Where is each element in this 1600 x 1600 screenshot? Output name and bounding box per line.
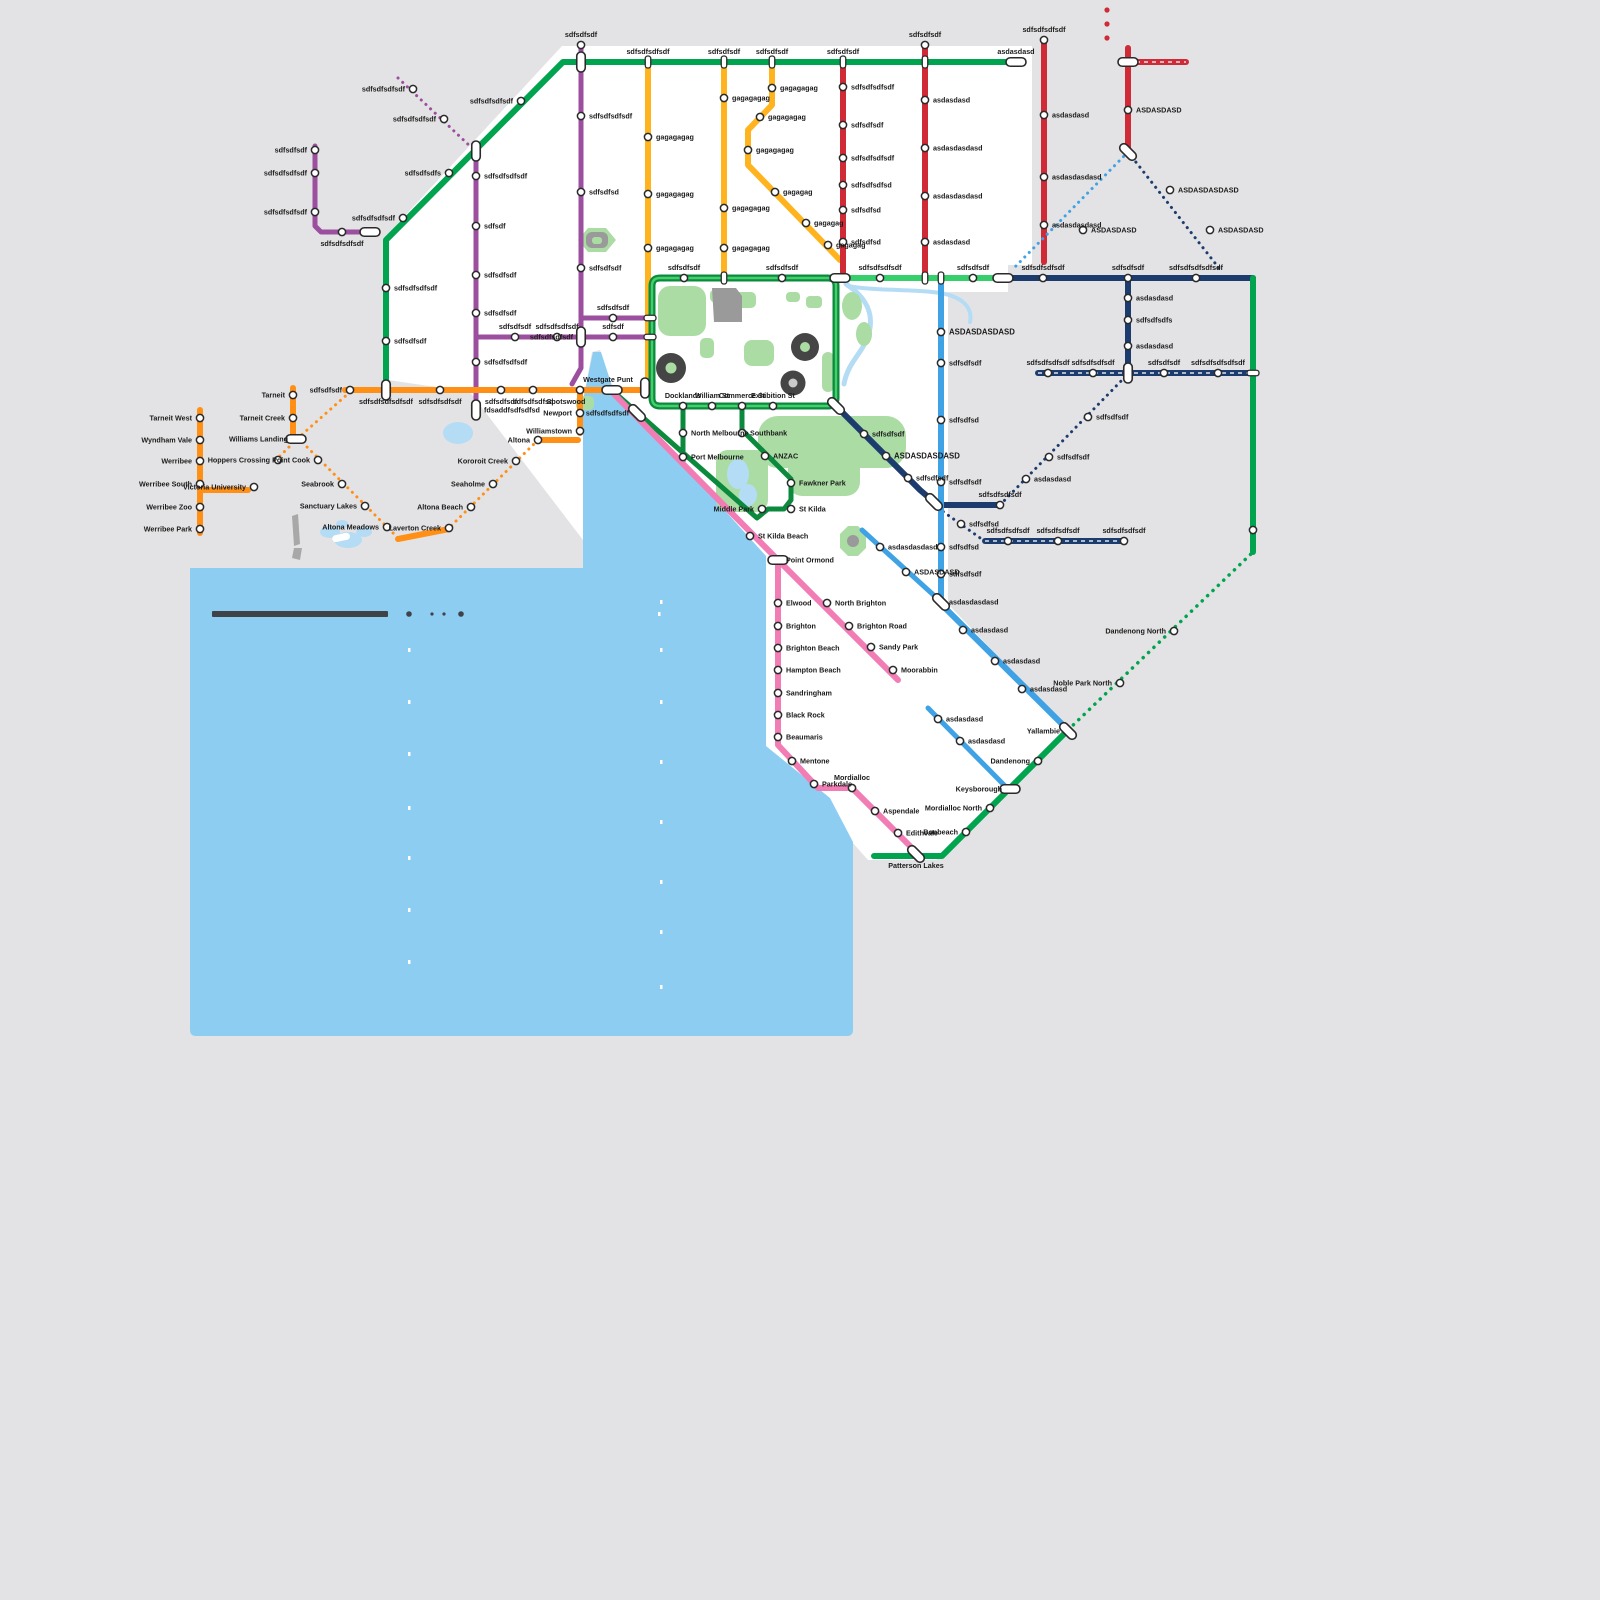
station-black-rock[interactable] bbox=[774, 711, 781, 718]
station-asdasdasd[interactable] bbox=[956, 737, 963, 744]
station-sdfsdfsdf[interactable] bbox=[839, 121, 846, 128]
station-laverton-creek[interactable] bbox=[445, 524, 452, 531]
water-speck bbox=[408, 960, 411, 964]
station-asdasdasdasd[interactable] bbox=[876, 543, 883, 550]
station-sdfsdfsdf[interactable] bbox=[346, 386, 353, 393]
station-sdfsdfsdf[interactable] bbox=[769, 56, 775, 68]
station-sdfsdfsdf[interactable] bbox=[497, 386, 504, 393]
station-anzac[interactable] bbox=[761, 452, 768, 459]
station-middle-park[interactable] bbox=[758, 505, 765, 512]
station-gagagag[interactable] bbox=[771, 188, 778, 195]
station-sdfsdfsdfsdf[interactable] bbox=[311, 208, 318, 215]
station-marker[interactable] bbox=[922, 56, 928, 68]
station-gagagagag[interactable] bbox=[644, 190, 651, 197]
station-marker[interactable] bbox=[922, 272, 928, 284]
scale-bar bbox=[212, 611, 388, 617]
station-gagagagag[interactable] bbox=[720, 204, 727, 211]
station-sdfsdfsd[interactable] bbox=[957, 520, 964, 527]
station-dandenong[interactable] bbox=[1034, 757, 1041, 764]
station-gagagagag[interactable] bbox=[720, 244, 727, 251]
station-sdfsdfsdfsdf[interactable] bbox=[1004, 537, 1011, 544]
station-sdfsdfsdf[interactable] bbox=[472, 271, 479, 278]
station-marker[interactable] bbox=[993, 274, 1013, 283]
station-asdasdasdasd[interactable] bbox=[1040, 173, 1047, 180]
station-sdfsdfsdfsdf[interactable] bbox=[839, 83, 846, 90]
station-aspendale[interactable] bbox=[871, 807, 878, 814]
station-asdasdasd[interactable] bbox=[1018, 685, 1025, 692]
water-speck bbox=[660, 820, 663, 824]
station-marker[interactable] bbox=[1249, 526, 1256, 533]
station-sdfsdfsdf[interactable] bbox=[937, 478, 944, 485]
station-sdfsdfsdf[interactable] bbox=[840, 56, 846, 68]
station-sdfsdfsdfsdf[interactable] bbox=[440, 115, 447, 122]
station-docklands[interactable] bbox=[679, 402, 686, 409]
station-sdfsdfsdf[interactable] bbox=[937, 570, 944, 577]
station-gagagagag[interactable] bbox=[644, 133, 651, 140]
station-sdfsdfsdfs[interactable] bbox=[1124, 316, 1131, 323]
station-tarneit-west[interactable] bbox=[196, 414, 203, 421]
station-asdasdasd[interactable] bbox=[921, 96, 928, 103]
station-altona[interactable] bbox=[534, 436, 541, 443]
station-werribee[interactable] bbox=[196, 457, 203, 464]
station-sdfsdfsdfsdf[interactable] bbox=[517, 97, 524, 104]
station-asdasdasd[interactable] bbox=[991, 657, 998, 664]
station-mentone[interactable] bbox=[788, 757, 795, 764]
water-speck bbox=[408, 700, 411, 704]
station-sdfsdfsd[interactable] bbox=[937, 416, 944, 423]
scale-bar-dot bbox=[430, 612, 433, 615]
station-sdfsdfsdfsdf[interactable] bbox=[382, 284, 389, 291]
station-marker[interactable] bbox=[1124, 363, 1133, 383]
red-line-dot bbox=[1104, 21, 1109, 26]
station-commerce-st[interactable] bbox=[738, 402, 745, 409]
station-asdasdasd[interactable] bbox=[1022, 475, 1029, 482]
station-sdfsdfsdf[interactable] bbox=[382, 337, 389, 344]
station-edithvale[interactable] bbox=[894, 829, 901, 836]
water-speck bbox=[408, 856, 411, 860]
scale-bar-dot bbox=[406, 611, 412, 617]
park-hex-center bbox=[847, 535, 859, 547]
station-asdasdasdasd[interactable] bbox=[882, 452, 889, 459]
station-gagagagag[interactable] bbox=[744, 146, 751, 153]
station-marker[interactable] bbox=[830, 274, 850, 283]
water-speck bbox=[660, 648, 663, 652]
station-sdfsdfsdf[interactable] bbox=[1160, 369, 1167, 376]
station-hoppers-crossing[interactable] bbox=[274, 456, 281, 463]
station-sdfsdfsdfsdf[interactable] bbox=[1054, 537, 1061, 544]
station-marker[interactable] bbox=[644, 315, 656, 321]
station-asdasdasdasd[interactable] bbox=[937, 328, 944, 335]
station-asdasdasd[interactable] bbox=[1124, 294, 1131, 301]
water-speck bbox=[660, 760, 663, 764]
station-tarneit[interactable] bbox=[289, 391, 296, 398]
station-seaholme[interactable] bbox=[489, 480, 496, 487]
station-sdfsdfsdfsdf[interactable] bbox=[876, 274, 883, 281]
station-sdfsdfsdfsdf[interactable] bbox=[1120, 537, 1127, 544]
red-line-dot bbox=[1104, 35, 1109, 40]
station-hampton-beach[interactable] bbox=[774, 666, 781, 673]
station-asdasdasdasd[interactable] bbox=[1166, 186, 1173, 193]
station-sandy-park[interactable] bbox=[867, 643, 874, 650]
station-marker[interactable] bbox=[472, 141, 481, 161]
station-bonbeach[interactable] bbox=[962, 828, 969, 835]
station-elwood[interactable] bbox=[774, 599, 781, 606]
station-sdfsdfsdf[interactable] bbox=[721, 56, 727, 68]
station-sdfsdfsdfsdfsdf[interactable] bbox=[1192, 274, 1199, 281]
station-spotswood[interactable] bbox=[576, 386, 583, 393]
station-sdfsdfsdf[interactable] bbox=[921, 41, 928, 48]
station-altona-beach[interactable] bbox=[467, 503, 474, 510]
station-sdfsdfsdf[interactable] bbox=[1124, 274, 1131, 281]
station-asdasdasd[interactable] bbox=[1124, 106, 1131, 113]
station-wyndham-vale[interactable] bbox=[196, 436, 203, 443]
city-buildings bbox=[712, 288, 742, 322]
water-speck bbox=[408, 908, 411, 912]
station-sdfsdfsdfsdf[interactable] bbox=[409, 85, 416, 92]
station-north-melbourne[interactable] bbox=[679, 429, 686, 436]
station-gagagagag[interactable] bbox=[644, 244, 651, 251]
station-beaumaris[interactable] bbox=[774, 733, 781, 740]
station-asdasdasd[interactable] bbox=[959, 626, 966, 633]
station-mordialloc[interactable] bbox=[848, 784, 855, 791]
transit-map: sdfsdfsdfsdfsdfsdfsdfssdfsdfsdfsdfsdfsdf… bbox=[0, 0, 1600, 1600]
station-sdfsdfsdfsdfsdf[interactable] bbox=[382, 380, 391, 400]
water-speck bbox=[660, 600, 663, 604]
station-gagagag[interactable] bbox=[824, 241, 831, 248]
station-brighton-road[interactable] bbox=[845, 622, 852, 629]
station-marker[interactable] bbox=[360, 228, 380, 237]
station-werribee-park[interactable] bbox=[196, 525, 203, 532]
station-asdasdasdasd[interactable] bbox=[1040, 221, 1047, 228]
station-sdfsdfsd[interactable] bbox=[839, 238, 846, 245]
station-sandringham[interactable] bbox=[774, 689, 781, 696]
station-marker[interactable] bbox=[641, 378, 650, 398]
station-sdfsdfsdf[interactable] bbox=[311, 146, 318, 153]
station-sdfsdfsdf[interactable] bbox=[904, 474, 911, 481]
station-gagagagag[interactable] bbox=[756, 113, 763, 120]
station-asdasdasd[interactable] bbox=[1040, 111, 1047, 118]
station-sdfsdfsdf[interactable] bbox=[577, 264, 584, 271]
station-asdasdasd[interactable] bbox=[902, 568, 909, 575]
station-sdfsdfsdfsd[interactable] bbox=[839, 181, 846, 188]
station-sdfsdfsd[interactable] bbox=[577, 188, 584, 195]
station-asdasdasd[interactable] bbox=[1206, 226, 1213, 233]
station-sdfsdfsdfsdf[interactable] bbox=[577, 327, 586, 347]
station-asdasdasd[interactable] bbox=[921, 238, 928, 245]
station-victoria-university[interactable] bbox=[250, 483, 257, 490]
station-sdfsdfsdfsdf[interactable] bbox=[436, 386, 443, 393]
water-speck bbox=[408, 648, 411, 652]
water-speck bbox=[660, 985, 663, 989]
station-marker[interactable] bbox=[1118, 58, 1138, 67]
station-point-ormond[interactable] bbox=[768, 556, 788, 565]
station-fdsaddfsdfsdfsd[interactable] bbox=[472, 400, 481, 420]
scale-bar-dot bbox=[442, 612, 445, 615]
station-asdasdasd[interactable] bbox=[934, 715, 941, 722]
station-sanctuary-lakes[interactable] bbox=[361, 502, 368, 509]
station-sdfsdfsdf[interactable] bbox=[511, 333, 518, 340]
station-sdfsdfsdfsdf[interactable] bbox=[1040, 36, 1047, 43]
station-asdasdasdasd[interactable] bbox=[921, 192, 928, 199]
station-port-melbourne[interactable] bbox=[679, 453, 686, 460]
station-sdfsdfsdf[interactable] bbox=[1045, 453, 1052, 460]
station-sdfsdfsdfsdf[interactable] bbox=[839, 154, 846, 161]
red-line-dot bbox=[1104, 7, 1109, 12]
station-marker[interactable] bbox=[577, 52, 586, 72]
station-tarneit-creek[interactable] bbox=[289, 414, 296, 421]
station-north-brighton[interactable] bbox=[823, 599, 830, 606]
station-sdfsdfsdf[interactable] bbox=[472, 309, 479, 316]
station-exhibition-st[interactable] bbox=[769, 402, 776, 409]
station-williams-landing[interactable] bbox=[286, 435, 306, 444]
water-speck bbox=[658, 612, 661, 616]
station-sdfsdfsdf[interactable] bbox=[680, 274, 687, 281]
station-sdfsdfsdfsdf[interactable] bbox=[645, 56, 651, 68]
water-speck bbox=[408, 806, 411, 810]
station-gagagag[interactable] bbox=[802, 219, 809, 226]
station-brighton-beach[interactable] bbox=[774, 644, 781, 651]
station-point-cook[interactable] bbox=[314, 456, 321, 463]
station-marker[interactable] bbox=[1247, 370, 1259, 376]
station-westgate-punt[interactable] bbox=[602, 386, 622, 395]
station-sdfsdfsd[interactable] bbox=[839, 206, 846, 213]
station-werribee-zoo[interactable] bbox=[196, 503, 203, 510]
station-sdfsdfsdf[interactable] bbox=[937, 359, 944, 366]
water-speck bbox=[660, 700, 663, 704]
station-marker[interactable] bbox=[938, 272, 944, 284]
station-sdfsdfsdfsdf[interactable] bbox=[1089, 369, 1096, 376]
station-brighton[interactable] bbox=[774, 622, 781, 629]
station-sdfsdfsdfsdf[interactable] bbox=[338, 228, 345, 235]
station-sdfsdfsdfsdf[interactable] bbox=[472, 172, 479, 179]
station-asdasdasd[interactable] bbox=[1079, 226, 1086, 233]
water-speck bbox=[660, 930, 663, 934]
station-sdfsdfsdfsdf[interactable] bbox=[472, 358, 479, 365]
station-william-st[interactable] bbox=[708, 402, 715, 409]
station-sdfsdf[interactable] bbox=[472, 222, 479, 229]
station-sdfsdfsdfsdf[interactable] bbox=[311, 169, 318, 176]
station-asdasdasd[interactable] bbox=[1124, 342, 1131, 349]
station-southbank[interactable] bbox=[738, 429, 745, 436]
station-moorabbin[interactable] bbox=[889, 666, 896, 673]
station-kororoit-creek[interactable] bbox=[512, 457, 519, 464]
station-altona-meadows[interactable] bbox=[383, 523, 390, 530]
station-sdfsdfsdfsdf[interactable] bbox=[399, 214, 406, 221]
station-sdfsdfsdf[interactable] bbox=[969, 274, 976, 281]
station-asdasdasdasd[interactable] bbox=[921, 144, 928, 151]
station-sdfsdfsdf[interactable] bbox=[1084, 413, 1091, 420]
station-werribee-south[interactable] bbox=[196, 480, 203, 487]
station-mordialloc-north[interactable] bbox=[986, 804, 993, 811]
station-asdasdasd[interactable] bbox=[1006, 58, 1026, 67]
station-sdfsdf[interactable] bbox=[609, 333, 616, 340]
water-speck bbox=[660, 880, 663, 884]
station-parkdale[interactable] bbox=[810, 780, 817, 787]
station-sdfsdfsdfsdf[interactable] bbox=[996, 501, 1003, 508]
station-sdfsdfsdfsdf[interactable] bbox=[1044, 369, 1051, 376]
station-fawkner-park[interactable] bbox=[787, 479, 794, 486]
station-sdfsdfsdfs[interactable] bbox=[445, 169, 452, 176]
station-gagagagag[interactable] bbox=[768, 84, 775, 91]
station-marker[interactable] bbox=[644, 334, 656, 340]
station-sdfsdfsdfsdf[interactable] bbox=[577, 112, 584, 119]
station-sdfsdfsdf[interactable] bbox=[860, 430, 867, 437]
station-sdfsdfsdfsd[interactable] bbox=[529, 386, 536, 393]
station-sdfsdfsdf[interactable] bbox=[609, 314, 616, 321]
station-sdfsdfsdfsdf[interactable] bbox=[1039, 274, 1046, 281]
station-sdfsdfsd[interactable] bbox=[937, 543, 944, 550]
scale-bar-dot bbox=[458, 611, 464, 617]
station-sdfsdfsdf[interactable] bbox=[778, 274, 785, 281]
station-st-kilda[interactable] bbox=[787, 505, 794, 512]
station-st-kilda-beach[interactable] bbox=[746, 532, 753, 539]
water-speck bbox=[408, 752, 411, 756]
station-seabrook[interactable] bbox=[338, 480, 345, 487]
station-newport[interactable] bbox=[576, 409, 583, 416]
station-noble-park-north[interactable] bbox=[1116, 679, 1123, 686]
station-keysborough[interactable] bbox=[1000, 785, 1020, 794]
station-sdfsdfsdfsdfsdf[interactable] bbox=[1214, 369, 1221, 376]
station-marker[interactable] bbox=[721, 272, 727, 284]
station-dandenong-north[interactable] bbox=[1170, 627, 1177, 634]
station-williamstown[interactable] bbox=[576, 427, 583, 434]
station-sdfsdfsdf[interactable] bbox=[577, 41, 584, 48]
station-sdfsdfsdfsdf[interactable] bbox=[553, 333, 560, 340]
station-gagagagag[interactable] bbox=[720, 94, 727, 101]
